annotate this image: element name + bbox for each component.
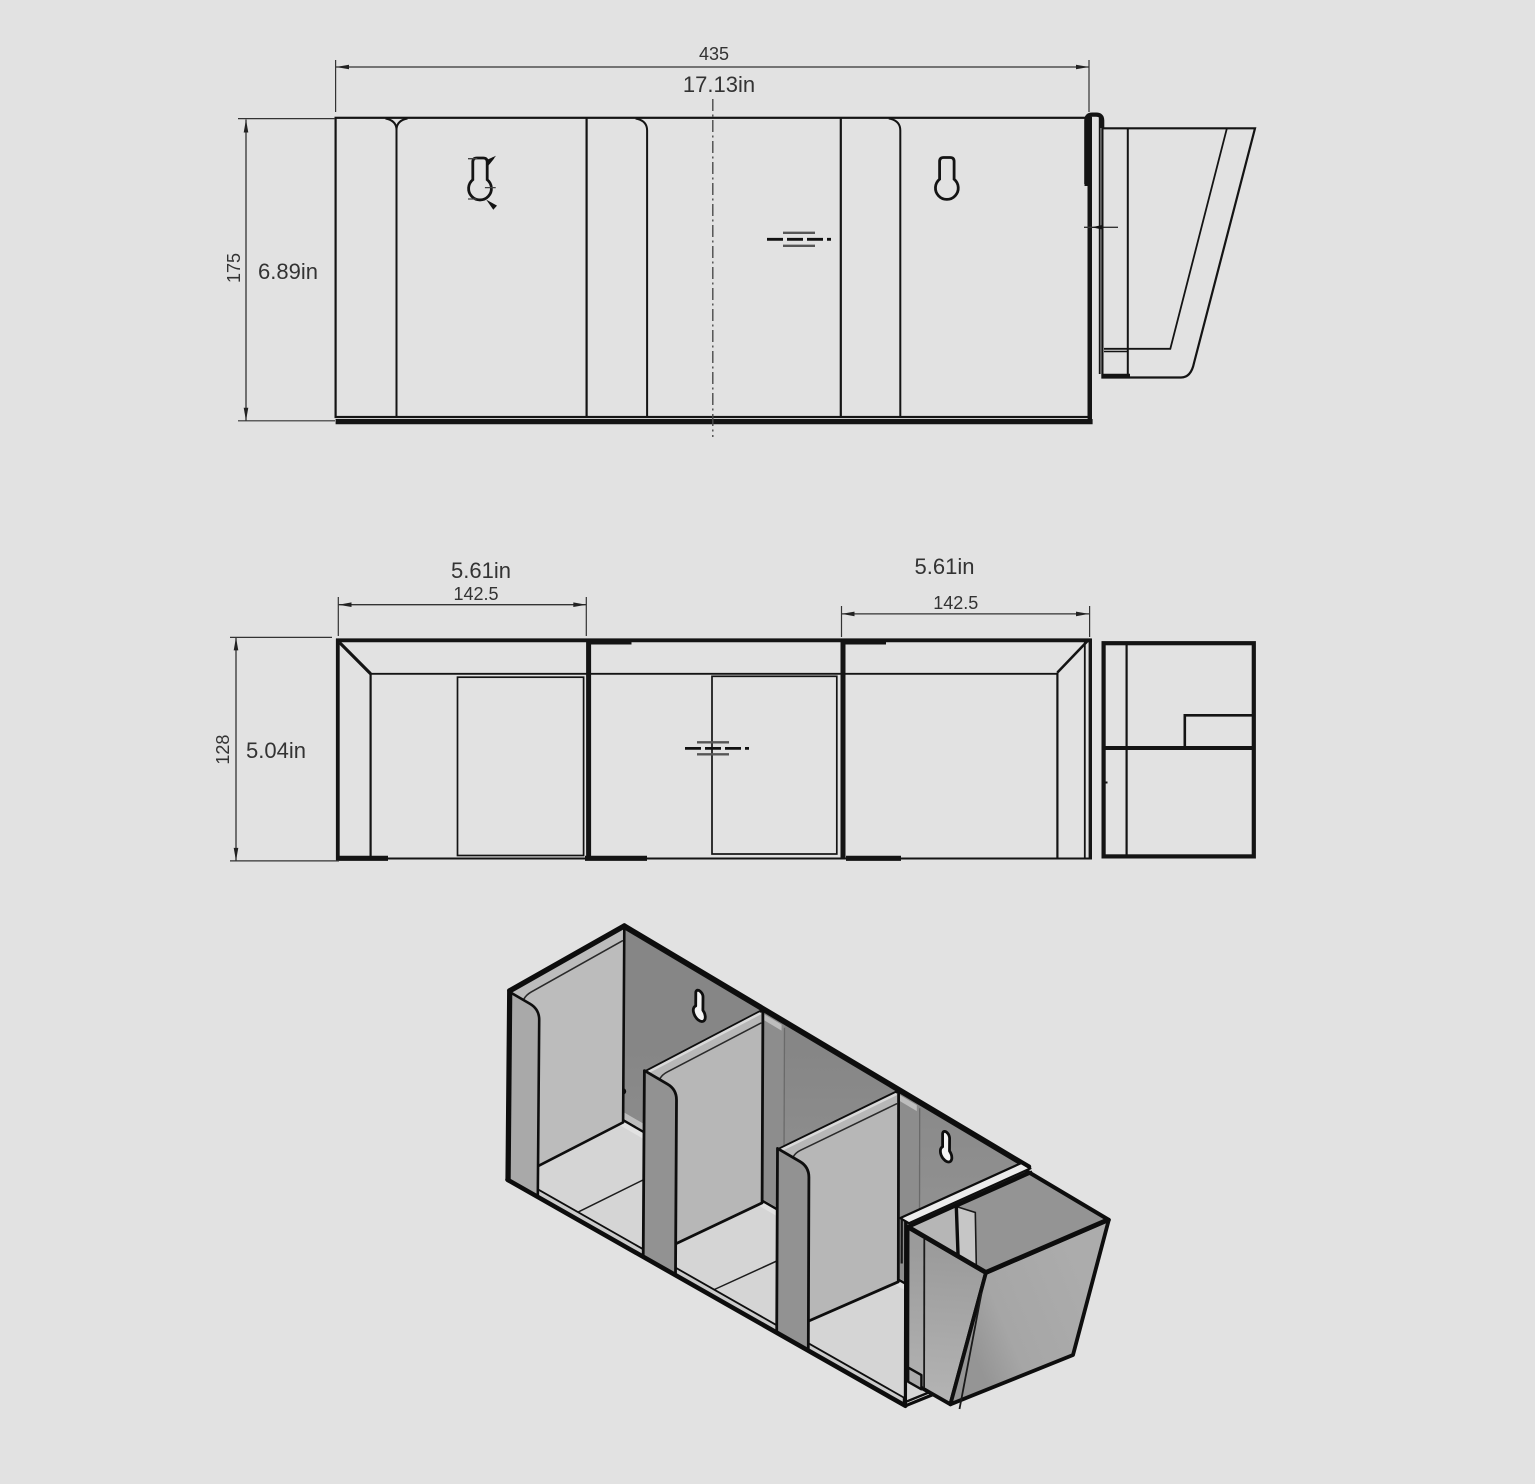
- svg-text:435: 435: [699, 44, 729, 64]
- svg-text:5.04in: 5.04in: [246, 738, 306, 763]
- svg-text:5.61in: 5.61in: [915, 554, 975, 579]
- svg-text:6.89in: 6.89in: [258, 259, 318, 284]
- svg-text:128: 128: [213, 735, 233, 765]
- svg-text:142.5: 142.5: [453, 584, 498, 604]
- svg-text:175: 175: [224, 253, 244, 283]
- svg-text:17.13in: 17.13in: [683, 72, 755, 97]
- svg-text:5.61in: 5.61in: [451, 558, 511, 583]
- svg-text:142.5: 142.5: [933, 593, 978, 613]
